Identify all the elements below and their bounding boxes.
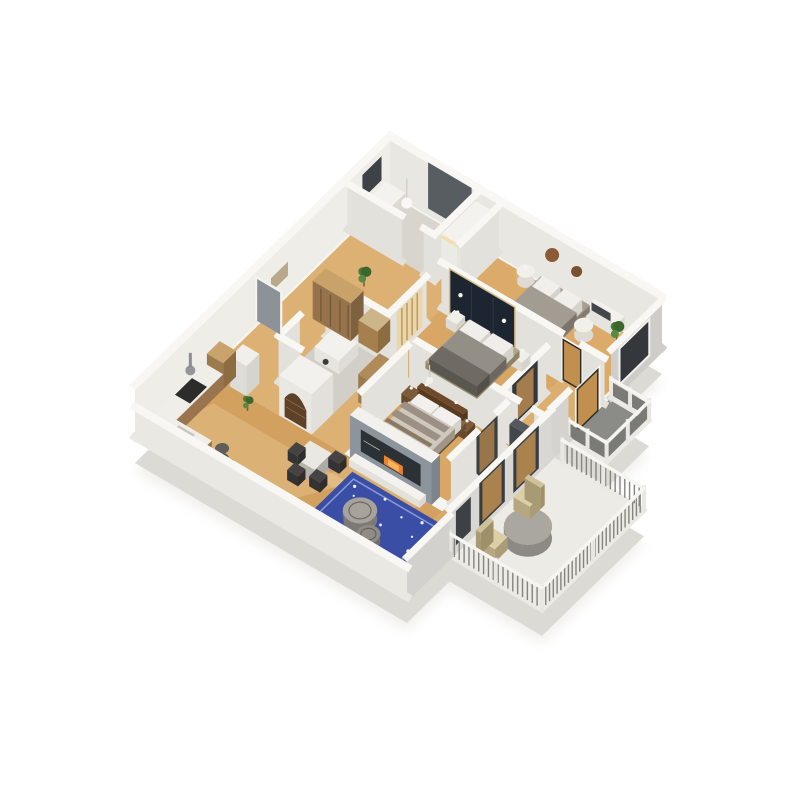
washer-door xyxy=(323,359,329,365)
hall-plant-leaf xyxy=(358,275,366,283)
rug-pattern xyxy=(400,516,402,518)
kitchen-plant-leaf xyxy=(246,396,254,404)
bed1-lamp-right xyxy=(521,349,525,353)
media-wall-se xyxy=(432,455,441,505)
rug-pattern xyxy=(384,498,387,501)
bed2-lamp-right xyxy=(465,419,468,422)
rug-pattern xyxy=(353,495,355,497)
master-plant-leaf xyxy=(611,330,619,338)
master-lamp-left xyxy=(524,266,528,270)
rug-pattern xyxy=(379,524,382,527)
bed2-sconce-2 xyxy=(454,401,457,404)
rug-pattern xyxy=(353,485,356,488)
bathroom-pendant-lamp xyxy=(401,198,412,209)
terrace-chair-1-back-se xyxy=(541,484,545,509)
navy-sconce-2 xyxy=(502,319,506,323)
rug-pattern xyxy=(420,521,423,524)
bed2-sconce-1 xyxy=(424,383,427,386)
bed2-lamp-left xyxy=(410,386,413,389)
wall-decor-circle-1 xyxy=(545,248,559,262)
rug-pattern xyxy=(411,536,413,538)
navy-sconce-1 xyxy=(458,293,462,297)
bed1-lamp-left xyxy=(456,310,460,314)
floor-plan-3d-render xyxy=(0,0,800,800)
floor-plan-svg xyxy=(0,0,800,800)
kitchen-plant-leaf xyxy=(243,403,249,409)
coffee-table-1-top xyxy=(343,497,377,523)
bed2-pendant xyxy=(426,377,433,384)
wall-decor-circle-2 xyxy=(571,266,582,277)
